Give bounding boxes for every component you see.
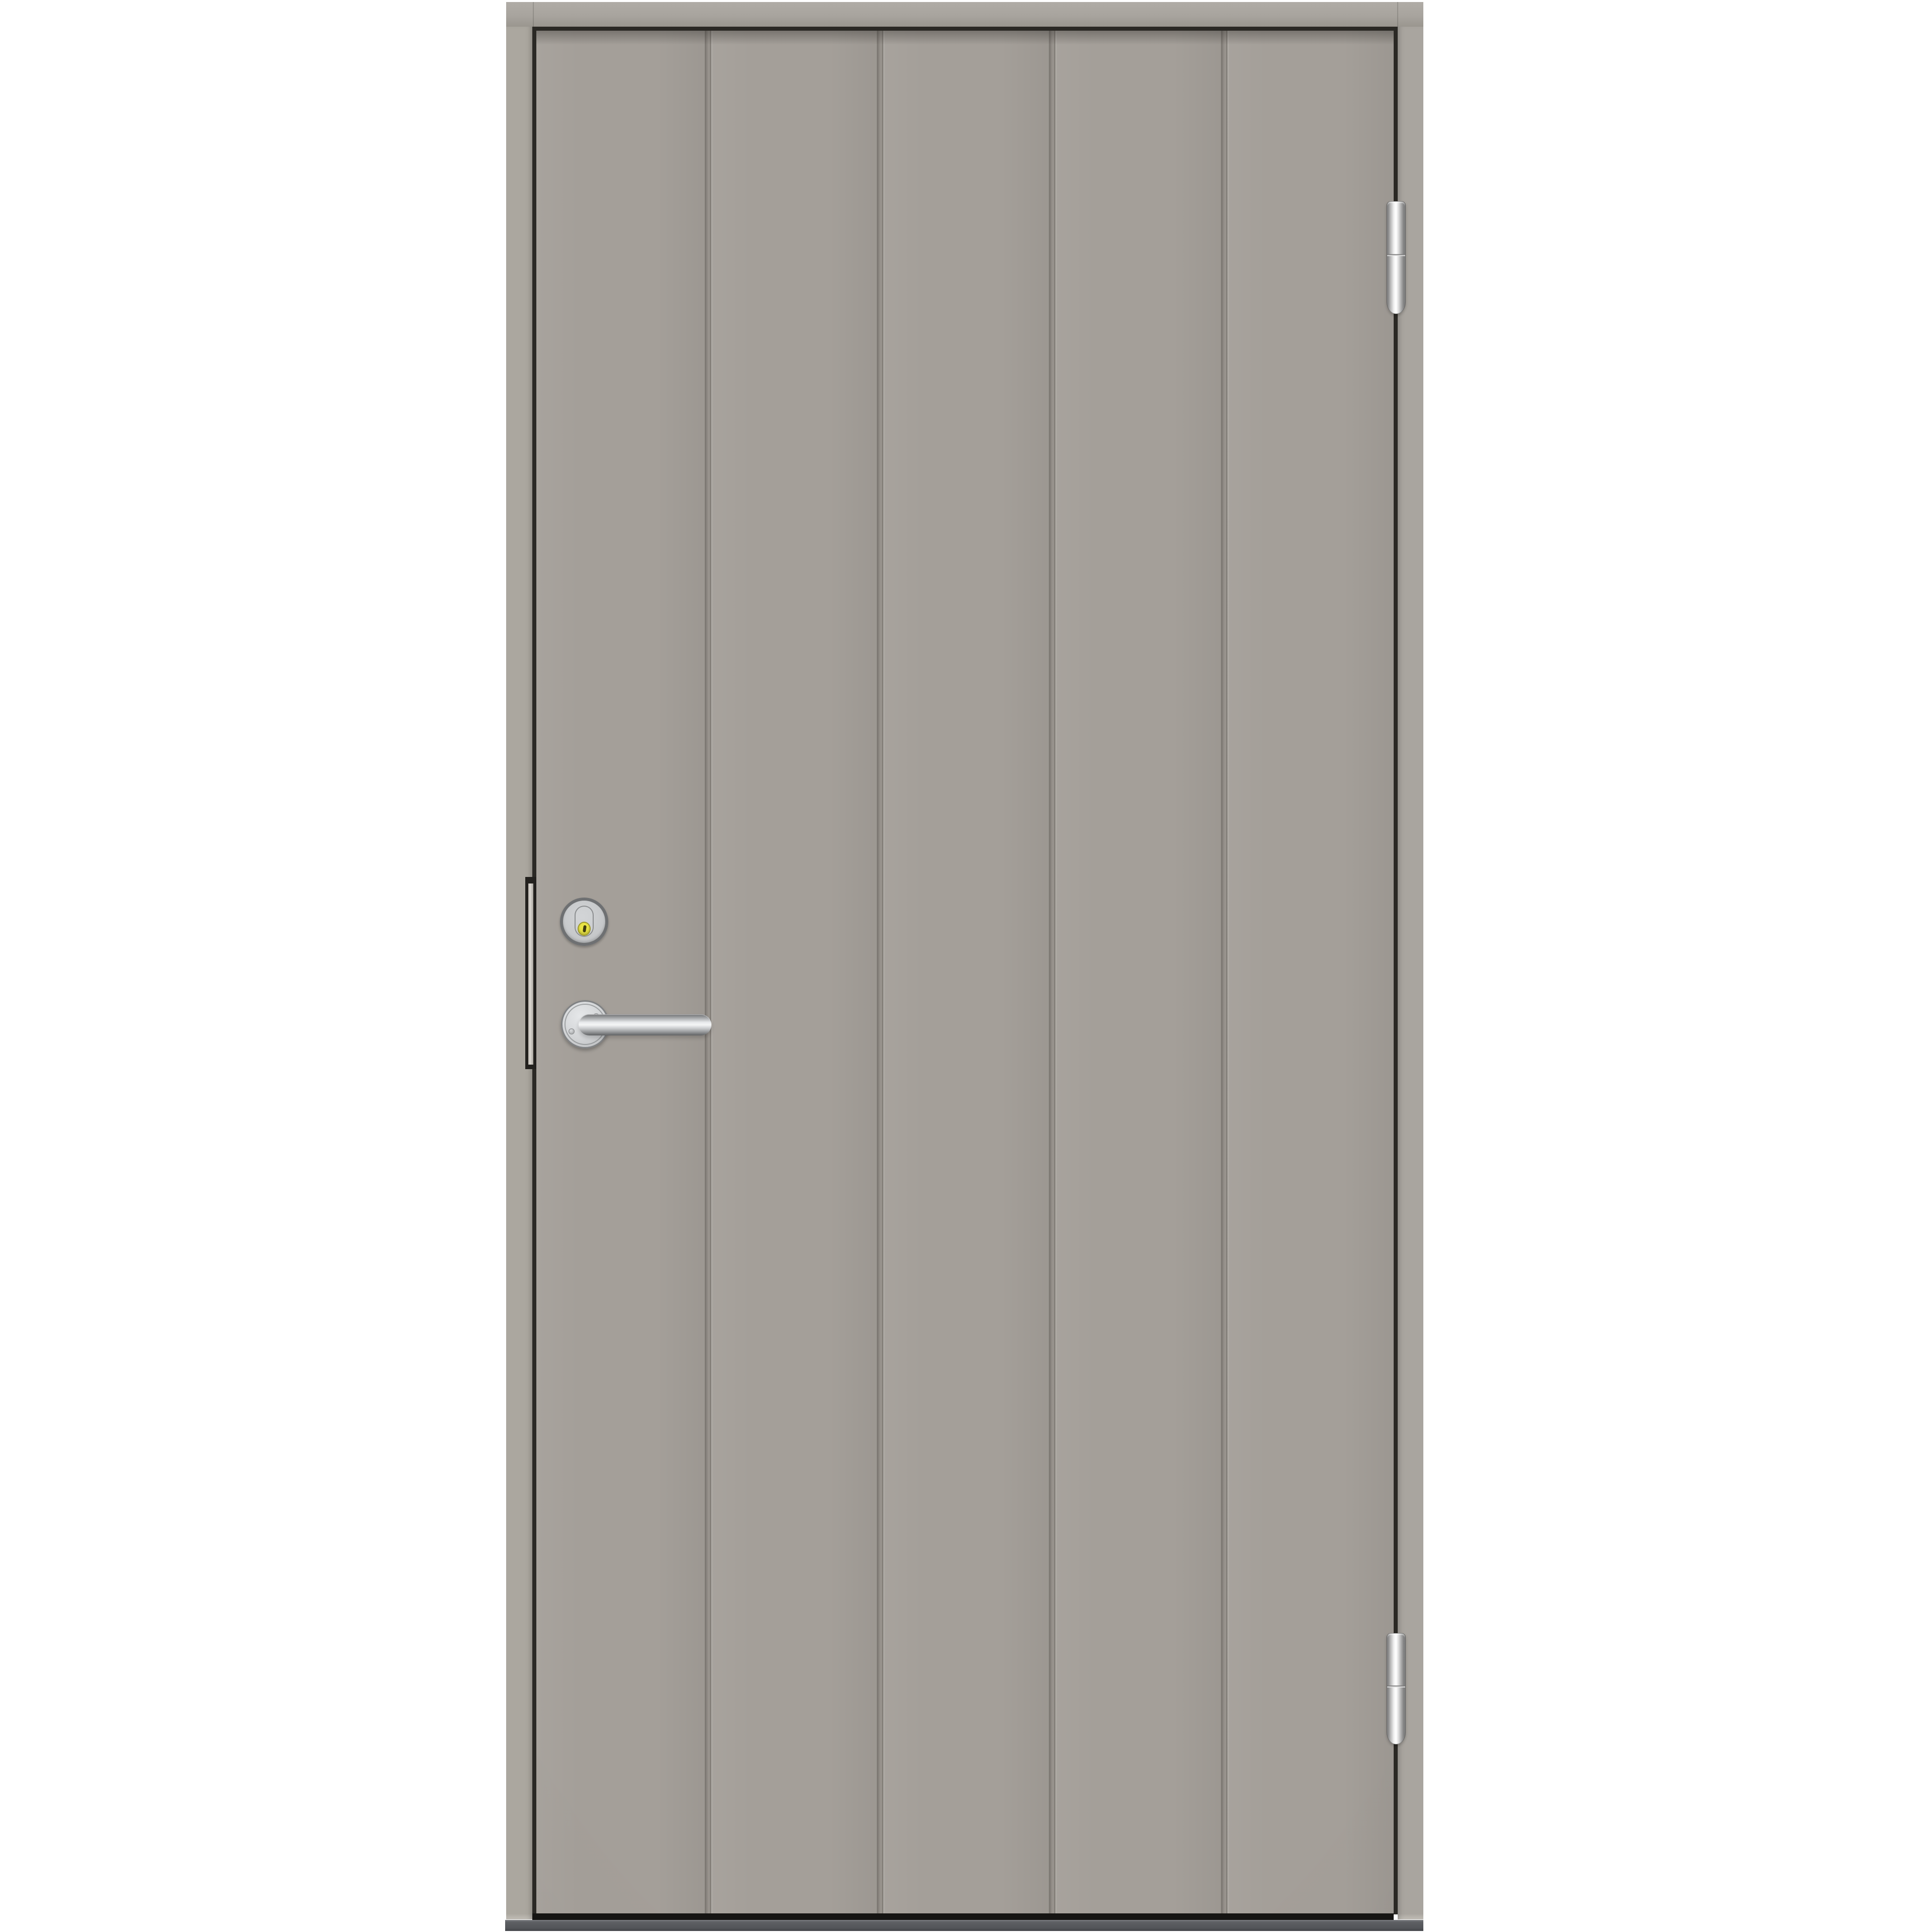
frame-miter-joint-right bbox=[1397, 2, 1398, 27]
lock-cylinder bbox=[560, 898, 608, 946]
frame-door-gap-top bbox=[532, 27, 1398, 31]
keyhole-slot bbox=[583, 925, 587, 933]
hinge-seam bbox=[1387, 1685, 1405, 1687]
door-product-photo bbox=[0, 0, 1932, 1932]
door-slab bbox=[536, 31, 1394, 1914]
rose-screw bbox=[569, 1028, 575, 1034]
hinge-seam bbox=[1387, 254, 1405, 256]
door-vignette bbox=[536, 31, 1394, 1914]
handle-lever bbox=[579, 1014, 711, 1035]
door-hinge-top bbox=[1387, 201, 1406, 314]
frame-miter-joint-left bbox=[533, 2, 534, 27]
door-frame-head bbox=[506, 2, 1423, 27]
keyhole-cover bbox=[578, 922, 591, 936]
threshold-sill bbox=[505, 1920, 1423, 1931]
lock-edge-faceplate bbox=[528, 883, 533, 1065]
door-hinge-bottom bbox=[1387, 1633, 1406, 1744]
